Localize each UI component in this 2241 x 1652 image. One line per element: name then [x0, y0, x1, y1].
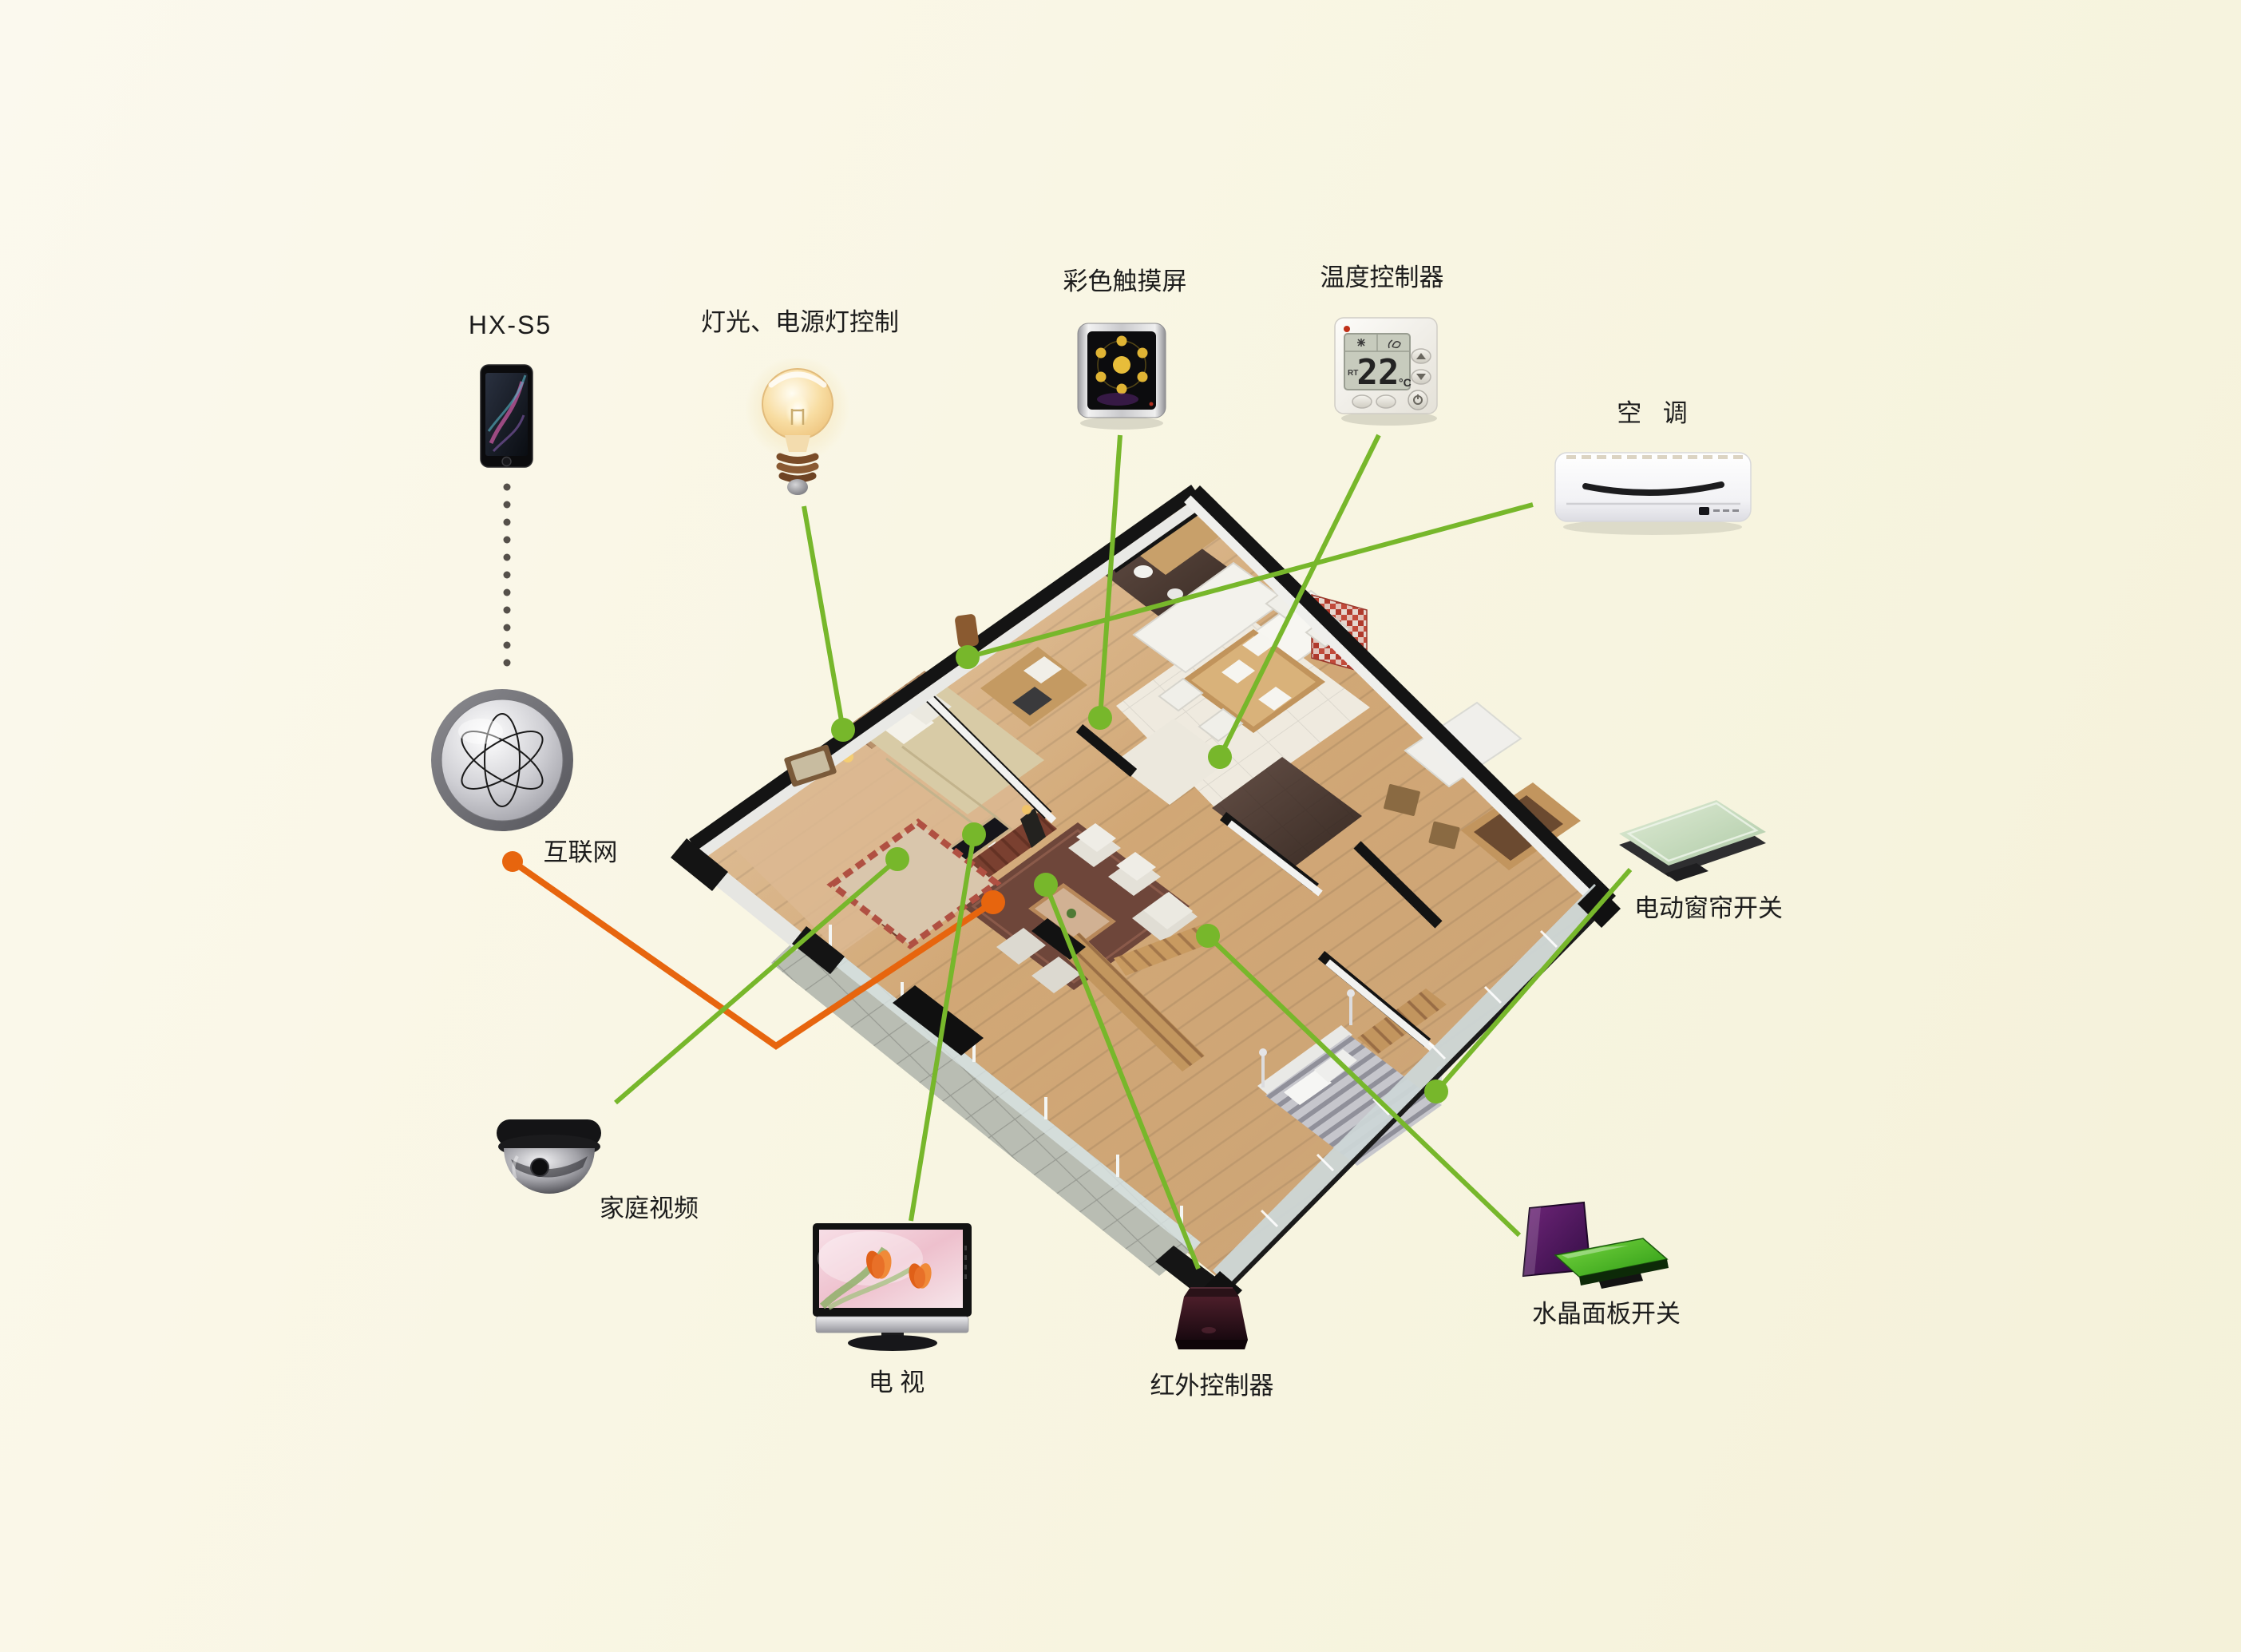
curtain-label: 电动窗帘开关: [1634, 894, 1783, 922]
device-lighting: 灯光、电源灯控制: [701, 308, 899, 495]
floorplan-illustration: [671, 490, 1621, 1308]
smart-home-diagram: HX-S5 灯光、电源灯控制 彩色触摸屏: [0, 0, 2241, 1652]
internet-globe-icon: [431, 689, 573, 831]
ir-controller-icon: [1175, 1287, 1248, 1349]
ir-label: 红外控制器: [1150, 1372, 1274, 1400]
device-internet: 互联网: [431, 689, 618, 866]
thermostat-mode: RT: [1348, 369, 1358, 378]
crystal-label: 水晶面板开关: [1532, 1300, 1681, 1328]
smartphone-icon: [481, 365, 533, 467]
thermostat-unit: °C: [1399, 376, 1412, 389]
device-camera: 家庭视频: [497, 1119, 699, 1222]
tv-icon: [813, 1223, 972, 1351]
device-ir: 红外控制器: [1150, 1287, 1274, 1400]
device-touchscreen: 彩色触摸屏: [1063, 267, 1187, 430]
device-tv: 电 视: [813, 1223, 972, 1396]
device-thermostat: 温度控制器 22 °C RT: [1320, 263, 1444, 426]
curtain-switch-icon: [1619, 800, 1766, 881]
device-ac: 空 调: [1555, 399, 1751, 535]
crystal-panel-icon: [1523, 1202, 1669, 1289]
dome-camera-icon: [497, 1119, 601, 1194]
phone-internet-dotted-line: [504, 484, 511, 667]
camera-label: 家庭视频: [600, 1194, 699, 1222]
internet-label: 互联网: [544, 838, 618, 866]
device-curtain: 电动窗帘开关: [1619, 800, 1783, 922]
light-bulb-icon: [745, 356, 850, 495]
thermostat-temp-display: 22: [1357, 352, 1400, 393]
thermostat-icon: 22 °C RT: [1335, 318, 1437, 426]
connection-dot-internet: [502, 851, 523, 872]
line-lighting: [804, 506, 843, 730]
device-phone: HX-S5: [469, 311, 552, 467]
touchscreen-icon: [1078, 323, 1166, 430]
lighting-label: 灯光、电源灯控制: [701, 308, 899, 336]
device-crystal: 水晶面板开关: [1523, 1202, 1681, 1328]
thermostat-label: 温度控制器: [1320, 263, 1444, 291]
tv-label: 电 视: [869, 1369, 925, 1396]
air-conditioner-icon: [1555, 453, 1751, 535]
connection-dot-living-room: [981, 890, 1005, 914]
ac-label: 空 调: [1617, 399, 1695, 427]
touchscreen-label: 彩色触摸屏: [1063, 267, 1187, 295]
phone-label: HX-S5: [469, 311, 552, 339]
